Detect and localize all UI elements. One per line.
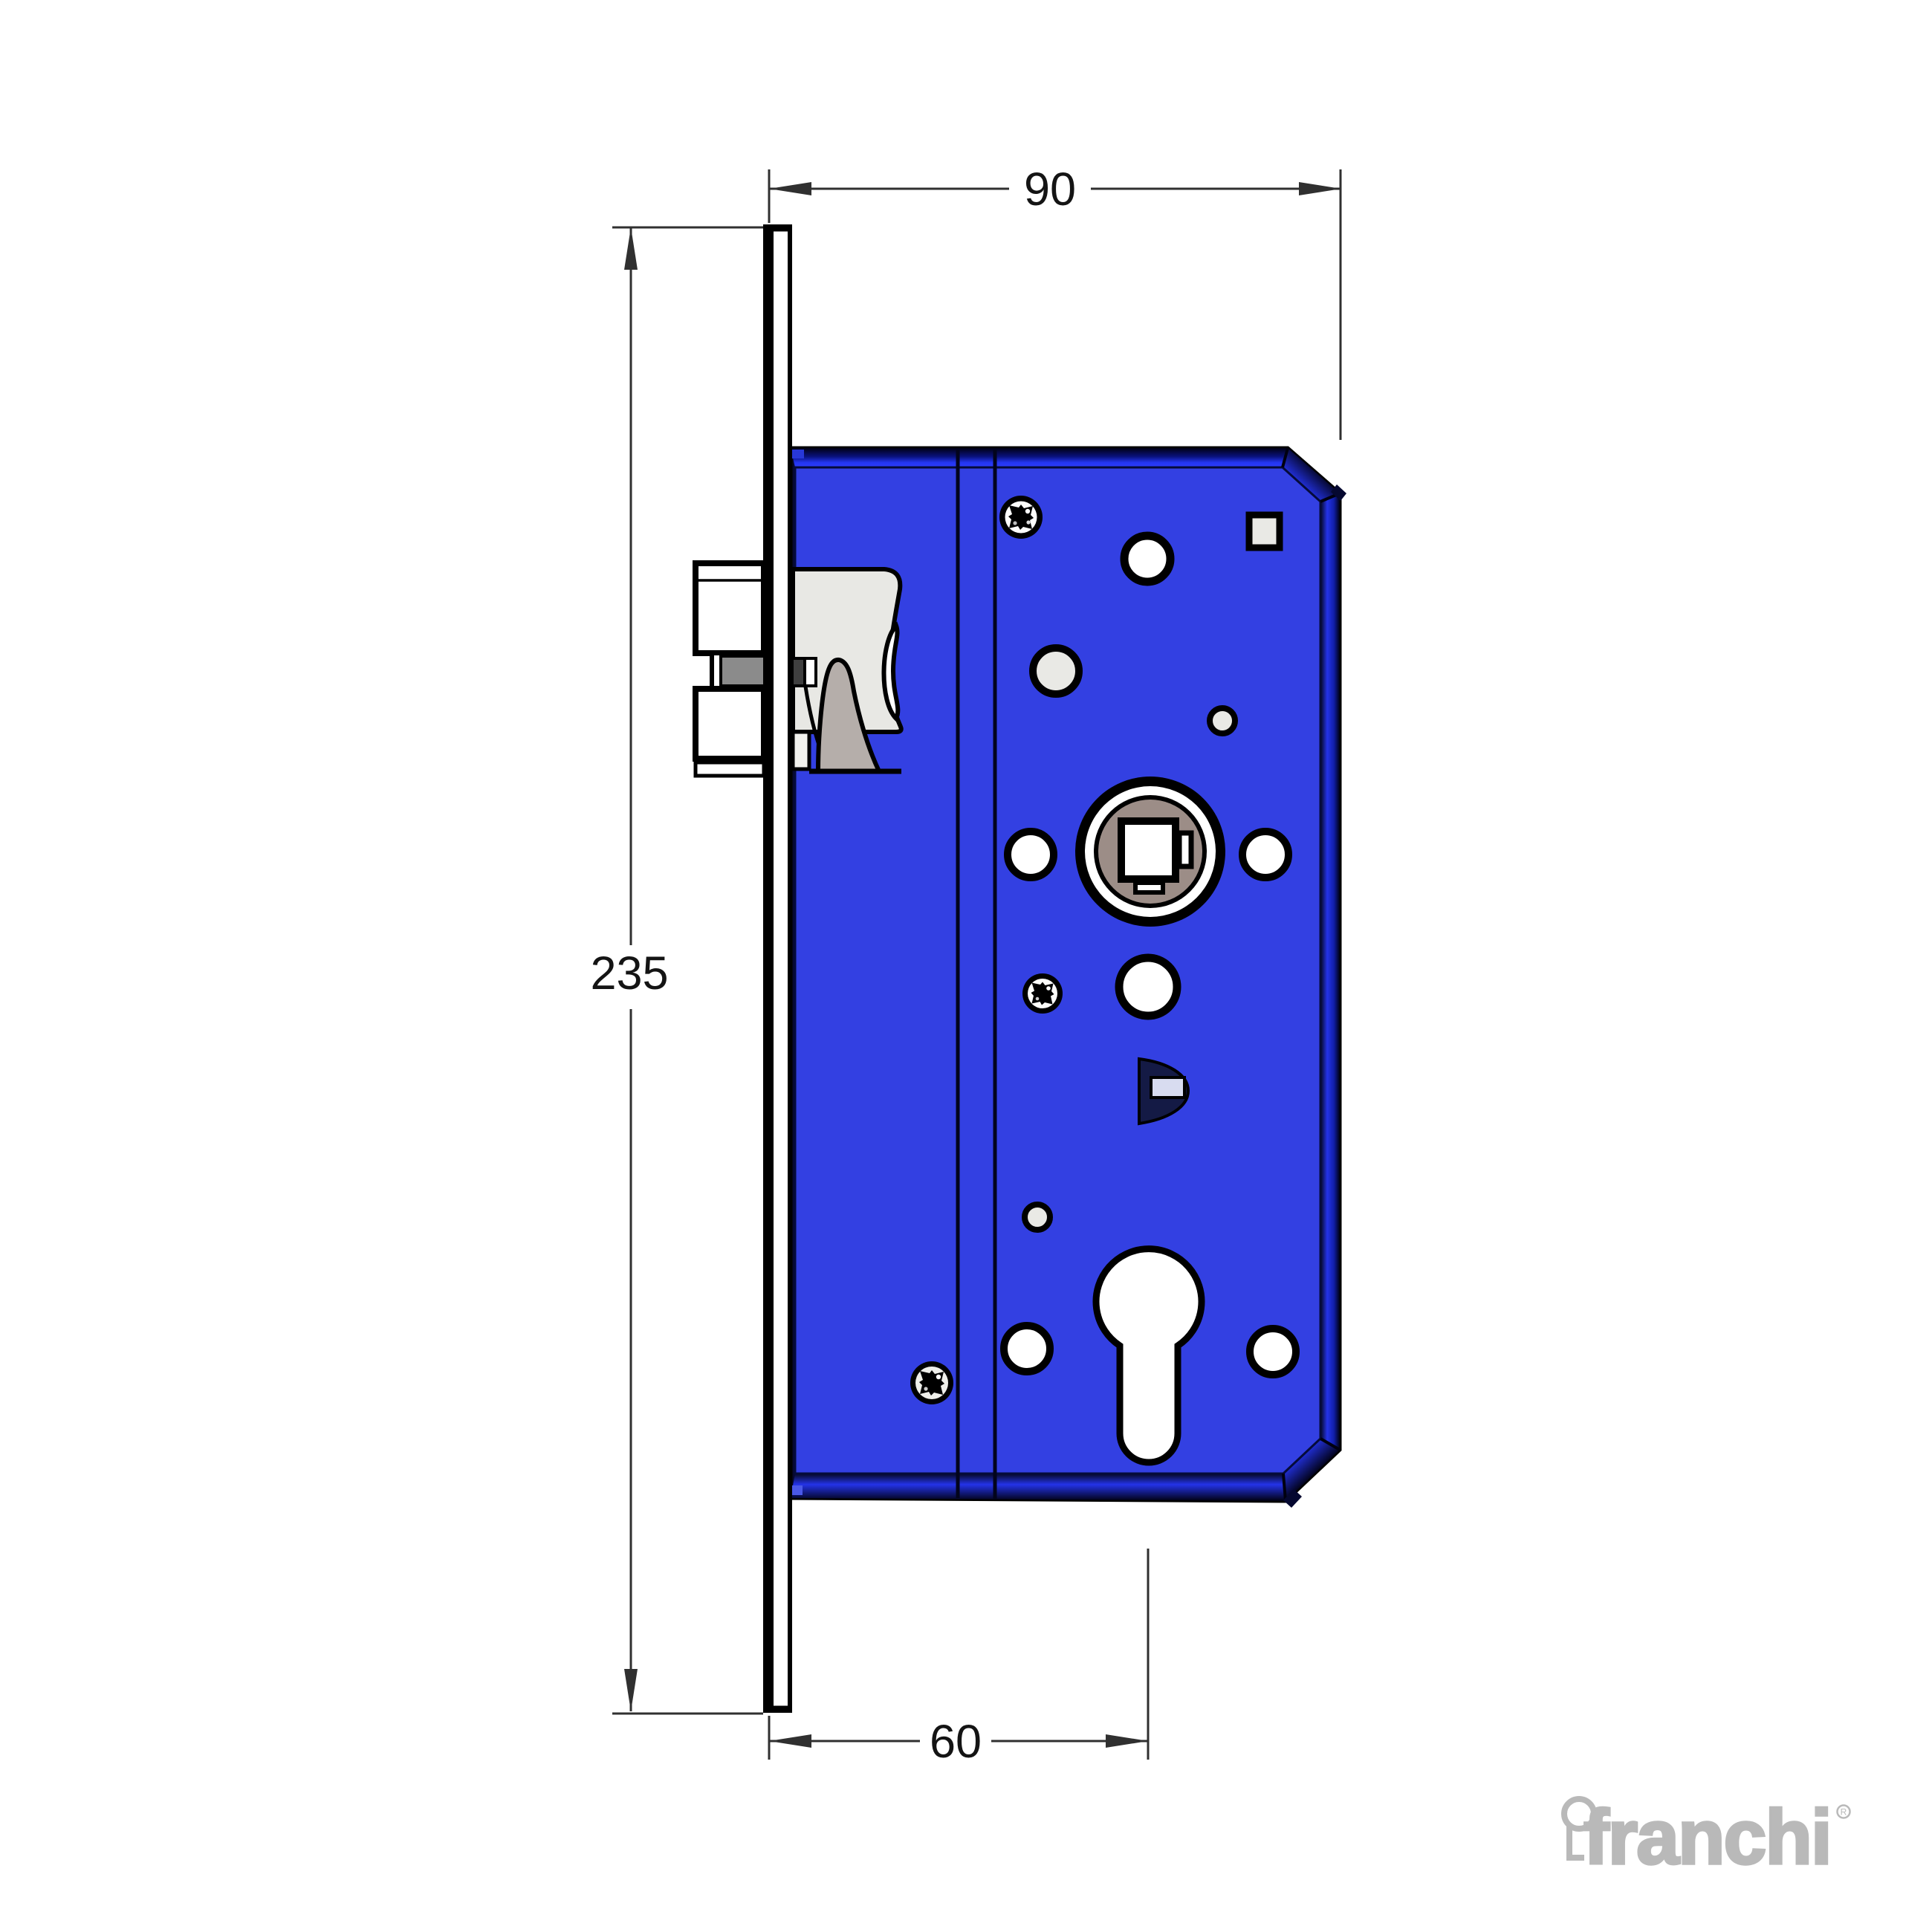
svg-text:franchi: franchi — [1583, 1795, 1831, 1881]
svg-text:235: 235 — [590, 947, 668, 999]
svg-text:90: 90 — [1024, 163, 1076, 215]
svg-text:R: R — [1841, 1807, 1847, 1818]
svg-text:60: 60 — [930, 1716, 982, 1768]
